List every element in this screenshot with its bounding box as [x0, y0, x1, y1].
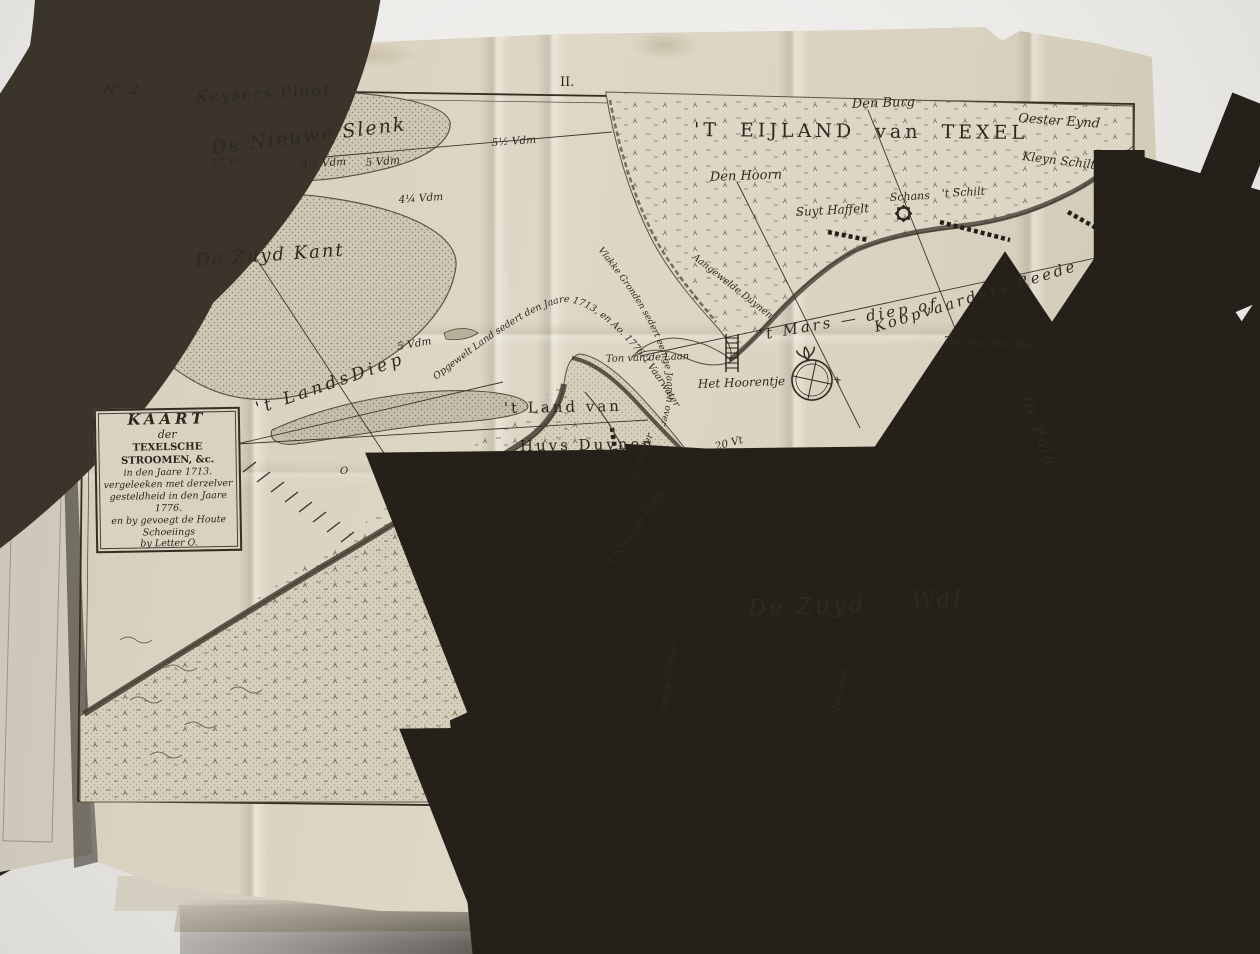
label-wal: Wal [911, 586, 964, 614]
groynes [243, 462, 354, 542]
cartouche-line: der [158, 428, 177, 442]
cartouche-title: KAART [127, 409, 206, 429]
label-huys-duynen: Huys Duynen [520, 435, 655, 455]
sounding-value: 5½ Vdm [491, 134, 536, 149]
label-den-burg: Den Burg [851, 95, 916, 112]
title-cartouche: KAART der TEXELSCHE STROOMEN, &c. in den… [94, 407, 242, 554]
label-land-van: 't Land van [504, 397, 622, 417]
label-t-schilt: 't Schilt [941, 185, 985, 200]
sounding-value: 27 Vt [210, 155, 241, 169]
label-den-hoorn: Den Hoorn [709, 167, 783, 185]
sounding-value: 5 Vdm [365, 155, 400, 169]
photo-of-antique-map: { "plate": { "number": "II.", "sheet_no"… [0, 0, 1260, 954]
plate-number: II. [560, 75, 574, 90]
label-het-hoorentje: Het Hoorentje [697, 374, 786, 391]
label-schans: Schans [889, 189, 930, 204]
label-eijland-van-texel: 'T EIJLAND van TEXEL [694, 119, 1028, 144]
cartouche-line: by Letter O. [140, 538, 198, 551]
cartouche-line: TEXELSCHE STROOMEN, &c. [96, 441, 238, 468]
label-de-zuyd: De Zuyd [746, 592, 867, 622]
label-letter-o: O [340, 466, 348, 477]
sheet-number: N°. 2. [103, 83, 143, 98]
compass-rose-icon [785, 341, 843, 404]
cartouche-line: gesteldheid in den Jaare 1776. [97, 490, 239, 516]
sounding-value: 4¼ Vdm [397, 191, 443, 206]
cartouche-line: en by gevoegt de Houte Schoeiings [98, 513, 240, 539]
